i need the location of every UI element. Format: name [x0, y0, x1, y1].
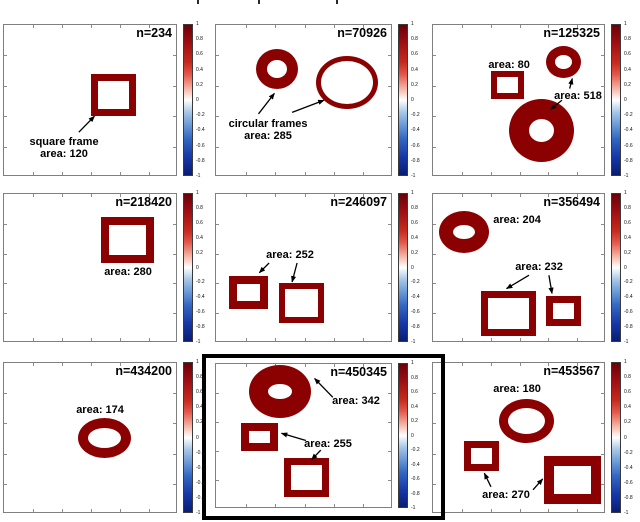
- colorbar-tick-label: -0.4: [411, 295, 420, 300]
- axis-tick: [4, 116, 7, 117]
- circular-frame-shape: [546, 46, 581, 78]
- colorbar-tick-label: -0.4: [196, 295, 205, 300]
- axis-tick: [601, 283, 604, 284]
- axis-tick: [462, 25, 463, 28]
- axis-tick: [520, 194, 521, 197]
- axis-tick: [91, 172, 92, 175]
- axis-tick: [246, 338, 247, 341]
- axis-tick: [216, 254, 219, 255]
- circular-frame-shape: [499, 399, 554, 443]
- colorbar-tick-label: 1: [624, 22, 627, 27]
- circular-frame-shape: [439, 211, 489, 253]
- square-frame-shape: [279, 283, 324, 323]
- axis-tick: [462, 509, 463, 512]
- colorbar-tick-label: 0: [196, 436, 199, 441]
- axis-tick: [62, 509, 63, 512]
- axis-tick: [577, 172, 578, 175]
- axis-tick: [491, 363, 492, 366]
- colorbar-tick-label: -0.2: [196, 280, 205, 285]
- annotation-line: area: 518: [554, 90, 602, 102]
- area-annotation: area: 180: [493, 383, 541, 395]
- axis-tick: [388, 116, 391, 117]
- axis-tick: [33, 194, 34, 197]
- colorbar-tick-label: -1: [411, 340, 415, 345]
- colorbar-tick-label: 0.2: [624, 420, 631, 425]
- axis-tick: [491, 509, 492, 512]
- axis-tick: [548, 509, 549, 512]
- plot-area: area: 280n=218420: [3, 193, 177, 342]
- axis-tick: [577, 509, 578, 512]
- colorbar-tick-label: -0.2: [196, 113, 205, 118]
- axis-tick: [216, 116, 219, 117]
- colorbar-tick-label: -0.2: [411, 113, 420, 118]
- colorbar-tick-label: -0.8: [624, 496, 633, 501]
- axis-tick: [462, 338, 463, 341]
- axis-tick: [305, 194, 306, 197]
- axis-tick: [577, 338, 578, 341]
- axis-tick: [275, 25, 276, 28]
- colorbar-tick-label: 0.2: [624, 83, 631, 88]
- axis-tick: [548, 172, 549, 175]
- axis-tick: [173, 224, 176, 225]
- area-annotation: area: 80: [488, 59, 530, 71]
- colorbar-tick-label: -0.4: [624, 466, 633, 471]
- axis-tick: [275, 172, 276, 175]
- cropped-title-descender: [258, 0, 260, 4]
- axis-tick: [601, 484, 604, 485]
- axis-tick: [433, 86, 436, 87]
- colorbar-tick-label: 0: [624, 98, 627, 103]
- colorbar: [183, 193, 193, 342]
- axis-tick: [216, 55, 219, 56]
- axis-tick: [305, 25, 306, 28]
- axis-tick: [120, 25, 121, 28]
- axis-tick: [33, 363, 34, 366]
- axis-tick: [433, 283, 436, 284]
- axis-tick: [334, 172, 335, 175]
- axis-tick: [275, 338, 276, 341]
- annotation-line: area: 270: [482, 489, 530, 501]
- axis-tick: [62, 172, 63, 175]
- figure-canvas: square framearea: 120n=23410.80.60.40.20…: [0, 0, 640, 522]
- colorbar-tick-label: -1: [624, 174, 628, 179]
- colorbar-tick-label: -0.8: [411, 159, 420, 164]
- colorbar: [183, 24, 193, 176]
- annotation-line: square frame: [29, 136, 98, 148]
- axis-tick: [91, 194, 92, 197]
- colorbar-tick-label: 0: [624, 436, 627, 441]
- sample-count-label: n=453567: [543, 364, 600, 378]
- axis-tick: [4, 86, 7, 87]
- colorbar-tick-label: 0.8: [624, 206, 631, 211]
- axis-tick: [246, 194, 247, 197]
- square-frame-shape: [464, 441, 499, 471]
- axis-tick: [601, 254, 604, 255]
- annotation-line: area: 180: [493, 383, 541, 395]
- colorbar-tick-label: 0.8: [624, 375, 631, 380]
- square-frame-shape: [546, 296, 581, 326]
- plot-area: area: 180area: 270n=453567: [432, 362, 605, 513]
- axis-tick: [33, 172, 34, 175]
- area-annotation: square framearea: 120: [29, 136, 98, 160]
- axis-tick: [433, 224, 436, 225]
- annotation-line: area: 252: [266, 249, 314, 261]
- axis-tick: [601, 147, 604, 148]
- area-annotation: area: 232: [515, 261, 563, 273]
- axis-tick: [120, 338, 121, 341]
- colorbar-tick-label: -0.8: [624, 325, 633, 330]
- annotation-line: area: 280: [104, 266, 152, 278]
- cropped-title-descender: [197, 0, 199, 4]
- colorbar-tick-label: 0.6: [624, 52, 631, 57]
- area-annotation: area: 280: [104, 266, 152, 278]
- colorbar-tick-label: -0.4: [411, 128, 420, 133]
- axis-tick: [4, 313, 7, 314]
- colorbar-tick-label: -1: [196, 174, 200, 179]
- axis-tick: [216, 147, 219, 148]
- plot-area: area: 80area: 518n=125325: [432, 24, 605, 176]
- axis-tick: [173, 313, 176, 314]
- annotation-line: area: 120: [40, 148, 88, 160]
- axis-tick: [216, 283, 219, 284]
- colorbar-tick-label: 0.6: [411, 52, 418, 57]
- colorbar-tick-label: -0.6: [411, 310, 420, 315]
- plot-area: area: 252n=246097: [215, 193, 392, 342]
- square-frame-shape: [101, 217, 154, 263]
- circular-frame-shape: [78, 418, 131, 458]
- colorbar-tick-label: -0.8: [196, 159, 205, 164]
- colorbar-tick-label: 0.8: [411, 37, 418, 42]
- colorbar-tick-label: 0.6: [411, 221, 418, 226]
- axis-tick: [520, 338, 521, 341]
- axis-tick: [120, 172, 121, 175]
- axis-tick: [601, 116, 604, 117]
- axis-tick: [173, 116, 176, 117]
- colorbar: [611, 362, 621, 513]
- colorbar-tick-label: -0.4: [624, 295, 633, 300]
- colorbar-tick-label: 0.6: [196, 221, 203, 226]
- colorbar-tick-label: 0.2: [196, 251, 203, 256]
- axis-tick: [4, 55, 7, 56]
- axis-tick: [173, 484, 176, 485]
- square-frame-shape: [544, 456, 601, 504]
- axis-tick: [33, 509, 34, 512]
- axis-tick: [601, 224, 604, 225]
- axis-tick: [601, 86, 604, 87]
- axis-tick: [216, 86, 219, 87]
- plot-area: square framearea: 120n=234: [3, 24, 177, 176]
- axis-tick: [149, 172, 150, 175]
- colorbar-tick-label: -0.2: [624, 280, 633, 285]
- colorbar-tick-label: -1: [624, 511, 628, 516]
- colorbar-tick-label: 0.4: [411, 236, 418, 241]
- area-annotation: area: 174: [76, 404, 124, 416]
- sample-count-label: n=434200: [115, 364, 172, 378]
- axis-tick: [4, 224, 7, 225]
- sample-count-label: n=234: [136, 26, 172, 40]
- axis-tick: [388, 254, 391, 255]
- axis-tick: [520, 509, 521, 512]
- axis-tick: [363, 172, 364, 175]
- annotation-line: area: 204: [493, 214, 541, 226]
- annotation-line: area: 232: [515, 261, 563, 273]
- colorbar-tick-label: 0: [624, 266, 627, 271]
- colorbar-tick-label: 0.8: [196, 37, 203, 42]
- axis-tick: [334, 338, 335, 341]
- colorbar-tick-label: -1: [411, 174, 415, 179]
- axis-tick: [462, 194, 463, 197]
- axis-tick: [62, 338, 63, 341]
- axis-tick: [601, 55, 604, 56]
- colorbar-tick-label: 0: [411, 266, 414, 271]
- colorbar-tick-label: 0: [411, 98, 414, 103]
- axis-tick: [173, 423, 176, 424]
- colorbar-tick-label: -0.4: [624, 128, 633, 133]
- colorbar-tick-label: 0.4: [624, 236, 631, 241]
- colorbar: [611, 24, 621, 176]
- axis-tick: [173, 454, 176, 455]
- axis-tick: [4, 484, 7, 485]
- square-frame-shape: [91, 74, 136, 116]
- colorbar-tick-label: 0.4: [624, 405, 631, 410]
- colorbar-tick-label: 1: [411, 22, 414, 27]
- colorbar-tick-label: -0.6: [411, 144, 420, 149]
- axis-tick: [462, 172, 463, 175]
- colorbar-tick-label: 0.6: [624, 221, 631, 226]
- colorbar-tick-label: 0: [196, 266, 199, 271]
- axis-tick: [246, 25, 247, 28]
- colorbar-tick-label: 0.4: [411, 68, 418, 73]
- axis-tick: [216, 313, 219, 314]
- colorbar-tick-label: -0.6: [196, 310, 205, 315]
- cropped-title-descender: [336, 0, 338, 4]
- annotation-line: circular frames: [229, 118, 308, 130]
- axis-tick: [388, 55, 391, 56]
- colorbar-tick-label: -0.2: [624, 451, 633, 456]
- axis-tick: [216, 224, 219, 225]
- axis-tick: [433, 313, 436, 314]
- axis-tick: [388, 313, 391, 314]
- colorbar-tick-label: -1: [624, 340, 628, 345]
- axis-tick: [491, 172, 492, 175]
- axis-tick: [173, 393, 176, 394]
- axis-tick: [4, 423, 7, 424]
- area-annotation: circular framesarea: 285: [229, 118, 308, 142]
- axis-tick: [388, 86, 391, 87]
- colorbar-tick-label: 0: [196, 98, 199, 103]
- square-frame-shape: [491, 71, 524, 99]
- axis-tick: [149, 338, 150, 341]
- colorbar-tick-label: -1: [196, 511, 200, 516]
- colorbar-tick-label: -0.6: [624, 144, 633, 149]
- colorbar-tick-label: -1: [196, 340, 200, 345]
- axis-tick: [601, 423, 604, 424]
- colorbar-tick-label: 0.4: [196, 236, 203, 241]
- axis-tick: [433, 254, 436, 255]
- axis-tick: [363, 338, 364, 341]
- axis-tick: [491, 338, 492, 341]
- axis-tick: [33, 25, 34, 28]
- axis-tick: [173, 147, 176, 148]
- axis-tick: [62, 194, 63, 197]
- axis-tick: [91, 338, 92, 341]
- circular-frame-shape: [256, 49, 298, 89]
- sample-count-label: n=70926: [337, 26, 387, 40]
- colorbar-tick-label: -0.8: [411, 325, 420, 330]
- colorbar-tick-label: -0.6: [624, 310, 633, 315]
- axis-tick: [173, 86, 176, 87]
- axis-tick: [173, 283, 176, 284]
- axis-tick: [4, 254, 7, 255]
- plot-area: circular framesarea: 285n=70926: [215, 24, 392, 176]
- axis-tick: [601, 393, 604, 394]
- axis-tick: [4, 454, 7, 455]
- colorbar-tick-label: -0.8: [196, 325, 205, 330]
- axis-tick: [91, 363, 92, 366]
- axis-tick: [491, 194, 492, 197]
- colorbar-tick-label: 0.8: [411, 206, 418, 211]
- colorbar-tick-label: 0.2: [624, 251, 631, 256]
- axis-tick: [520, 25, 521, 28]
- colorbar: [398, 193, 408, 342]
- square-frame-shape: [229, 276, 268, 309]
- plot-area: area: 204area: 232n=356494: [432, 193, 605, 342]
- axis-tick: [4, 393, 7, 394]
- colorbar-tick-label: 0.4: [196, 68, 203, 73]
- sample-count-label: n=218420: [115, 195, 172, 209]
- axis-tick: [4, 283, 7, 284]
- axis-tick: [120, 509, 121, 512]
- axis-tick: [520, 172, 521, 175]
- colorbar-tick-label: 1: [411, 191, 414, 196]
- axis-tick: [91, 509, 92, 512]
- colorbar-tick-label: -0.4: [196, 128, 205, 133]
- axis-tick: [62, 363, 63, 366]
- axis-tick: [520, 363, 521, 366]
- area-annotation: area: 270: [482, 489, 530, 501]
- axis-tick: [149, 509, 150, 512]
- square-frame-shape: [481, 291, 536, 336]
- colorbar-tick-label: 1: [624, 360, 627, 365]
- colorbar-tick-label: 1: [624, 191, 627, 196]
- colorbar-tick-label: -0.6: [624, 481, 633, 486]
- axis-tick: [334, 25, 335, 28]
- axis-tick: [388, 224, 391, 225]
- axis-tick: [491, 25, 492, 28]
- axis-tick: [433, 116, 436, 117]
- axis-tick: [548, 338, 549, 341]
- colorbar-tick-label: -0.6: [196, 144, 205, 149]
- colorbar-tick-label: 0.8: [196, 206, 203, 211]
- colorbar-tick-label: -0.2: [624, 113, 633, 118]
- colorbar-tick-label: 0.2: [196, 83, 203, 88]
- colorbar-tick-label: -0.2: [411, 280, 420, 285]
- annotation-line: area: 80: [488, 59, 530, 71]
- sample-count-label: n=356494: [543, 195, 600, 209]
- axis-tick: [388, 283, 391, 284]
- area-annotation: area: 252: [266, 249, 314, 261]
- colorbar: [398, 24, 408, 176]
- colorbar-tick-label: 0.6: [196, 52, 203, 57]
- axis-tick: [33, 338, 34, 341]
- sample-count-label: n=246097: [330, 195, 387, 209]
- colorbar-tick-label: 0.6: [624, 390, 631, 395]
- circular-frame-shape: [316, 56, 378, 109]
- highlighted-subplot-border: [202, 354, 445, 520]
- axis-tick: [601, 454, 604, 455]
- sample-count-label: n=125325: [543, 26, 600, 40]
- axis-tick: [275, 194, 276, 197]
- colorbar-tick-label: 0.2: [411, 251, 418, 256]
- axis-tick: [91, 25, 92, 28]
- circular-frame-shape: [509, 99, 574, 162]
- colorbar-tick-label: -0.8: [624, 159, 633, 164]
- colorbar-tick-label: 1: [196, 360, 199, 365]
- area-annotation: area: 204: [493, 214, 541, 226]
- axis-tick: [4, 147, 7, 148]
- annotation-line: area: 174: [76, 404, 124, 416]
- area-annotation: area: 518: [554, 90, 602, 102]
- axis-tick: [173, 254, 176, 255]
- plot-area: area: 174n=434200: [3, 362, 177, 513]
- annotation-line: area: 285: [244, 130, 292, 142]
- axis-tick: [433, 55, 436, 56]
- axis-tick: [173, 55, 176, 56]
- axis-tick: [462, 363, 463, 366]
- axis-tick: [62, 25, 63, 28]
- colorbar-tick-label: 0.8: [624, 37, 631, 42]
- colorbar: [183, 362, 193, 513]
- axis-tick: [305, 338, 306, 341]
- colorbar-tick-label: 0.2: [411, 83, 418, 88]
- colorbar-tick-label: 1: [196, 191, 199, 196]
- colorbar-tick-label: 0.4: [624, 68, 631, 73]
- axis-tick: [246, 172, 247, 175]
- colorbar: [611, 193, 621, 342]
- axis-tick: [433, 147, 436, 148]
- axis-tick: [601, 313, 604, 314]
- axis-tick: [305, 172, 306, 175]
- axis-tick: [388, 147, 391, 148]
- colorbar-tick-label: 1: [196, 22, 199, 27]
